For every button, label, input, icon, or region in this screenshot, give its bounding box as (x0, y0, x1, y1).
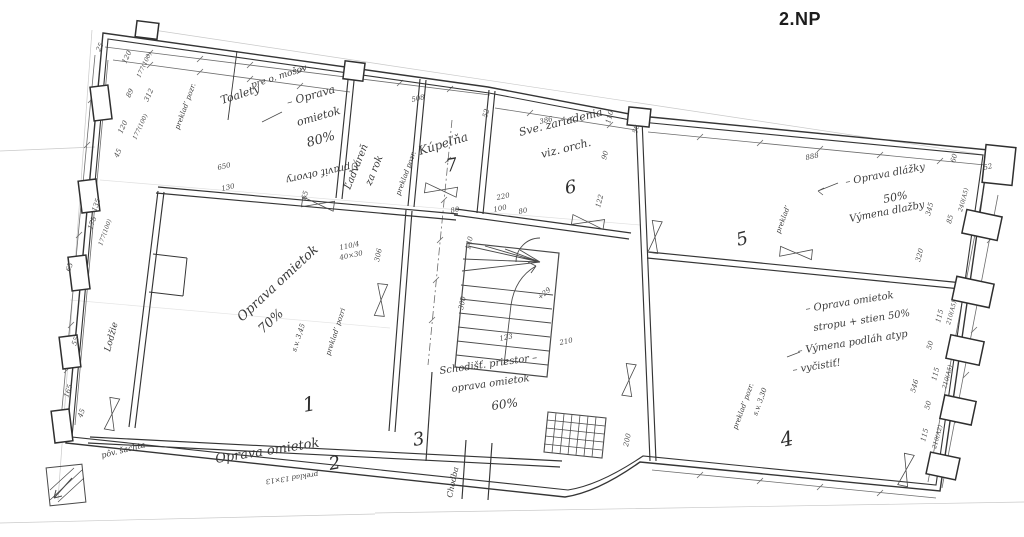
dimension-label: 60 (949, 152, 959, 163)
dimension-label: 306 (373, 247, 384, 262)
dimension-label: 55 (70, 335, 81, 347)
exterior-walls (66, 33, 989, 497)
room-number-label: 4 (777, 426, 795, 452)
dimension-label: 45 (76, 407, 87, 420)
handwritten-note: 70% (255, 306, 286, 337)
handwritten-note: – Oprava omietok (805, 290, 895, 315)
handwritten-note: preklad’ pozr. (731, 382, 755, 431)
handwritten-note: 60% (490, 395, 518, 413)
dimension-label: 80 (518, 206, 529, 216)
handwritten-note: preklad pozr. (394, 150, 417, 196)
dimension-label: 175 (86, 215, 98, 231)
handwritten-note: viz. orch. (540, 136, 593, 161)
dimension-label: 110 (604, 109, 615, 125)
room-number-label: 7 (444, 154, 459, 177)
room-number-label: 5 (734, 228, 750, 251)
dimension-label: 546 (909, 378, 920, 394)
handwritten-note: preklad’ pozri (324, 307, 347, 357)
scanned-floor-plan-page: 2.NP (0, 0, 1024, 537)
dimension-label: 52 (481, 107, 491, 118)
handwritten-note: 80% (305, 128, 337, 150)
dimension-label: 140 (464, 235, 475, 250)
dimension-label: 85 (945, 213, 955, 224)
dimension-label: 123 (499, 332, 514, 343)
handwritten-note: Chodba (445, 466, 460, 499)
dimension-label: 320 (914, 247, 925, 263)
window-mark-icon (374, 284, 387, 317)
window-mark-icon (648, 220, 662, 253)
dimension-label: 345 (924, 201, 935, 217)
handwritten-note: – vyčistiť! (792, 357, 842, 375)
interior-walls (88, 51, 963, 500)
dimension-label: 120 (117, 119, 130, 135)
dimension-label: 90 (600, 149, 610, 160)
dimension-label: 45 (112, 147, 124, 160)
dimension-label: 210 (558, 336, 574, 347)
handwritten-note: za rok (363, 154, 385, 188)
dimension-label: 115 (934, 308, 945, 324)
dimension-label: 80 (450, 205, 461, 215)
dimension-label: 25 (94, 41, 106, 54)
dimension-label: 177(100) (135, 50, 153, 79)
dimension-label: 888 (805, 151, 820, 162)
dimension-label: 177(100) (131, 112, 149, 141)
dimension-label: +29 (536, 286, 553, 302)
handwritten-note: Kúpeľňa (416, 130, 470, 159)
dimension-label: 115 (930, 366, 941, 382)
dimension-label: 50 (923, 399, 933, 410)
handwritten-note: Sve. zariadenia (518, 106, 604, 139)
handwritten-note: s.v. 3,30 (751, 386, 769, 416)
handwritten-note: preklad’ pozr. (173, 82, 197, 131)
stair-direction-arrow (504, 262, 536, 365)
entry-arrow-icon (54, 478, 72, 498)
dimension-label: 122 (594, 193, 605, 209)
handwritten-note: – Oprava dlážky (844, 162, 926, 188)
handwritten-note: Lodžie (102, 321, 121, 354)
window-mark-icon (780, 246, 813, 259)
dimension-label: 220 (495, 191, 511, 202)
dimension-label: 65 (300, 189, 310, 200)
handwritten-note: s.v. 3,45 (290, 322, 307, 353)
dimension-label: 210(A5) (945, 300, 958, 327)
dimension-label: 210(A5) (941, 364, 954, 391)
handwritten-note: pôv. šachta (100, 440, 146, 460)
dimension-label: 312 (143, 87, 156, 103)
room-number-label: 6 (563, 176, 578, 199)
shaft-grid (544, 412, 606, 458)
dimension-label: 200 (622, 432, 633, 448)
window-mark-icon (622, 363, 636, 396)
handwritten-note: preklad 13×13 (265, 470, 319, 485)
handwritten-note: oprava omietok (451, 373, 530, 395)
dimension-label: 300 (457, 295, 468, 310)
dimension-label: 50 (925, 339, 935, 350)
entry-stub (46, 464, 86, 506)
handwritten-note: omietok (295, 104, 342, 129)
dimension-label: 650 (217, 161, 232, 172)
dimension-label: 115 (919, 427, 930, 443)
plan-labels: Toaletypre o. mošov– Opravaomietok80%Upr… (62, 41, 993, 499)
dimension-label: 89 (125, 87, 136, 99)
dimension-label: 177(100) (97, 218, 113, 247)
room-number-label: 1 (301, 391, 318, 417)
dimension-label: 100 (493, 203, 508, 214)
room-number-label: 3 (411, 428, 426, 451)
window-mark-icon (104, 397, 119, 430)
window-mark-icon (424, 183, 457, 197)
floor-plan-drawing: Toaletypre o. mošov– Opravaomietok80%Upr… (0, 0, 1024, 537)
handwritten-note: preklad’ (774, 204, 792, 234)
